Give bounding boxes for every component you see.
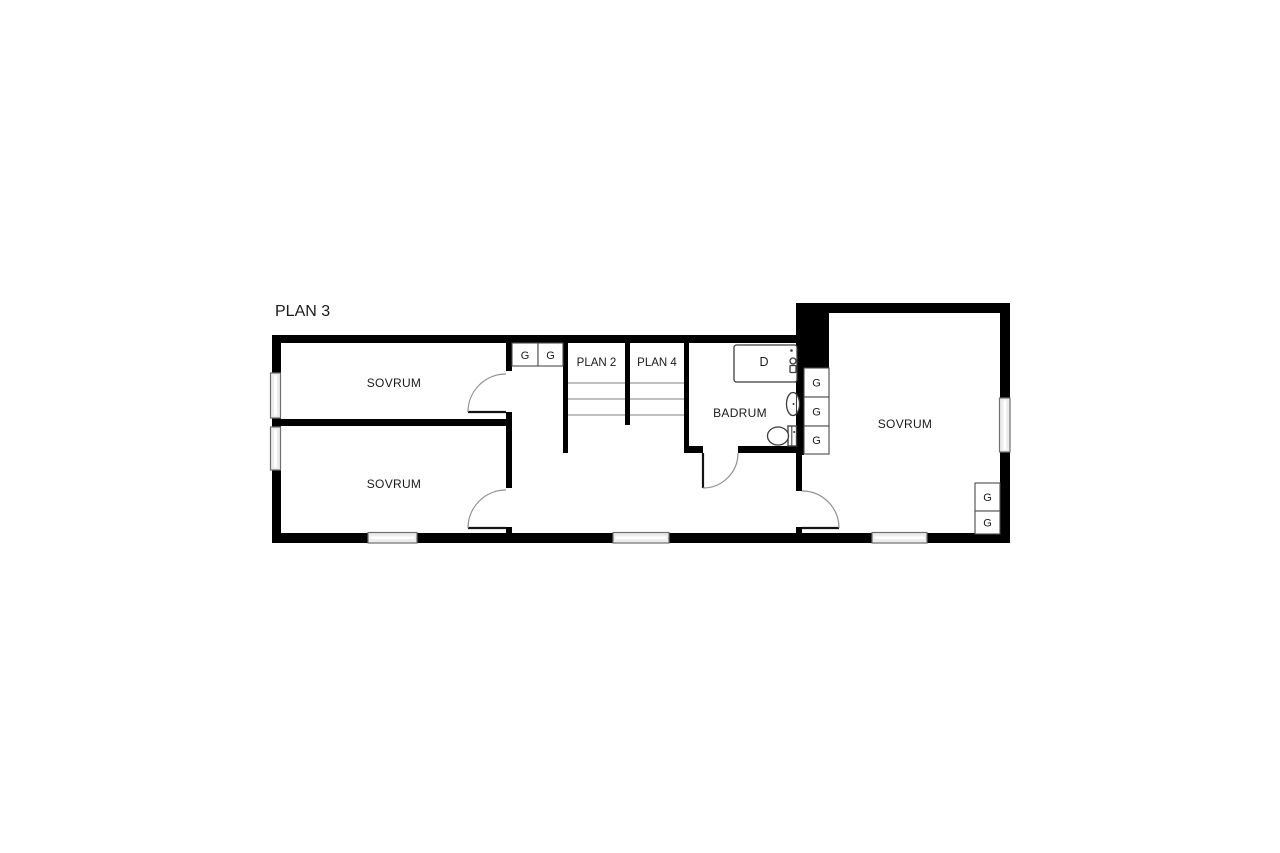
door-sovrum-right bbox=[802, 491, 839, 528]
room-label-sovrum-top-left: SOVRUM bbox=[367, 376, 421, 390]
top-wall-left-section bbox=[272, 335, 796, 343]
stair-flight-plan4: PLAN 4 bbox=[630, 357, 684, 415]
badrum-south-wall-right bbox=[738, 446, 804, 453]
closet-label: G bbox=[812, 435, 821, 447]
stairs-east-wall bbox=[684, 343, 689, 453]
window-bottom-1 bbox=[368, 533, 417, 544]
shower-icon: D bbox=[734, 345, 797, 382]
toilet-icon bbox=[768, 426, 797, 446]
closet-label: G bbox=[812, 378, 821, 390]
stairs-west-wall bbox=[563, 343, 568, 453]
plan-title: PLAN 3 bbox=[275, 303, 330, 320]
closet-bottom-right-2: G bbox=[975, 511, 1000, 534]
badrum-south-wall-left bbox=[684, 446, 703, 453]
right-sovrum-west-stub bbox=[796, 527, 802, 543]
hall-west-wall-stub bbox=[506, 527, 512, 539]
room-label-sovrum-bottom-left: SOVRUM bbox=[367, 477, 421, 491]
closet-column-2: G bbox=[804, 397, 829, 426]
closet-hall-2: G bbox=[538, 343, 563, 366]
closet-column-3: G bbox=[804, 426, 829, 454]
right-sovrum-west-wall bbox=[796, 455, 802, 491]
hall-west-wall-mid bbox=[506, 412, 512, 488]
room-label-sovrum-right: SOVRUM bbox=[878, 417, 932, 431]
door-sovrum-top-left bbox=[468, 374, 506, 412]
closet-hall-1: G bbox=[512, 343, 538, 366]
shower-label: D bbox=[759, 355, 768, 369]
room-labels: SOVRUM SOVRUM BADRUM SOVRUM bbox=[367, 376, 932, 491]
stair-label-plan2: PLAN 2 bbox=[577, 357, 617, 369]
window-bottom-3 bbox=[872, 533, 927, 544]
hall-west-wall-upper bbox=[506, 343, 512, 371]
badrum-fixtures: D bbox=[734, 345, 800, 446]
stair-label-plan4: PLAN 4 bbox=[637, 357, 677, 369]
stair-flight-plan2: PLAN 2 bbox=[568, 357, 625, 415]
closet-label: G bbox=[521, 350, 530, 362]
floor-plan-drawing: PLAN 3 bbox=[0, 0, 1280, 853]
stairs-middle-wall bbox=[625, 343, 630, 425]
window-left-2 bbox=[271, 427, 281, 470]
closet-bottom-right-1: G bbox=[975, 483, 1000, 511]
door-badrum bbox=[703, 453, 738, 488]
interior-walls bbox=[281, 343, 804, 543]
closet-label: G bbox=[983, 492, 992, 504]
closet-label: G bbox=[983, 518, 992, 530]
window-left-1 bbox=[271, 373, 281, 418]
room-label-badrum: BADRUM bbox=[713, 406, 767, 420]
sink-icon bbox=[787, 393, 800, 416]
closet-column-1: G bbox=[804, 368, 829, 397]
door-sovrum-bottom-left bbox=[468, 490, 506, 528]
closet-label: G bbox=[812, 407, 821, 419]
window-bottom-2 bbox=[613, 533, 669, 544]
floor-plan-page: PLAN 3 bbox=[0, 0, 1280, 853]
bedroom-divider-wall bbox=[281, 419, 506, 426]
window-right bbox=[1000, 398, 1011, 452]
closet-label: G bbox=[546, 350, 555, 362]
